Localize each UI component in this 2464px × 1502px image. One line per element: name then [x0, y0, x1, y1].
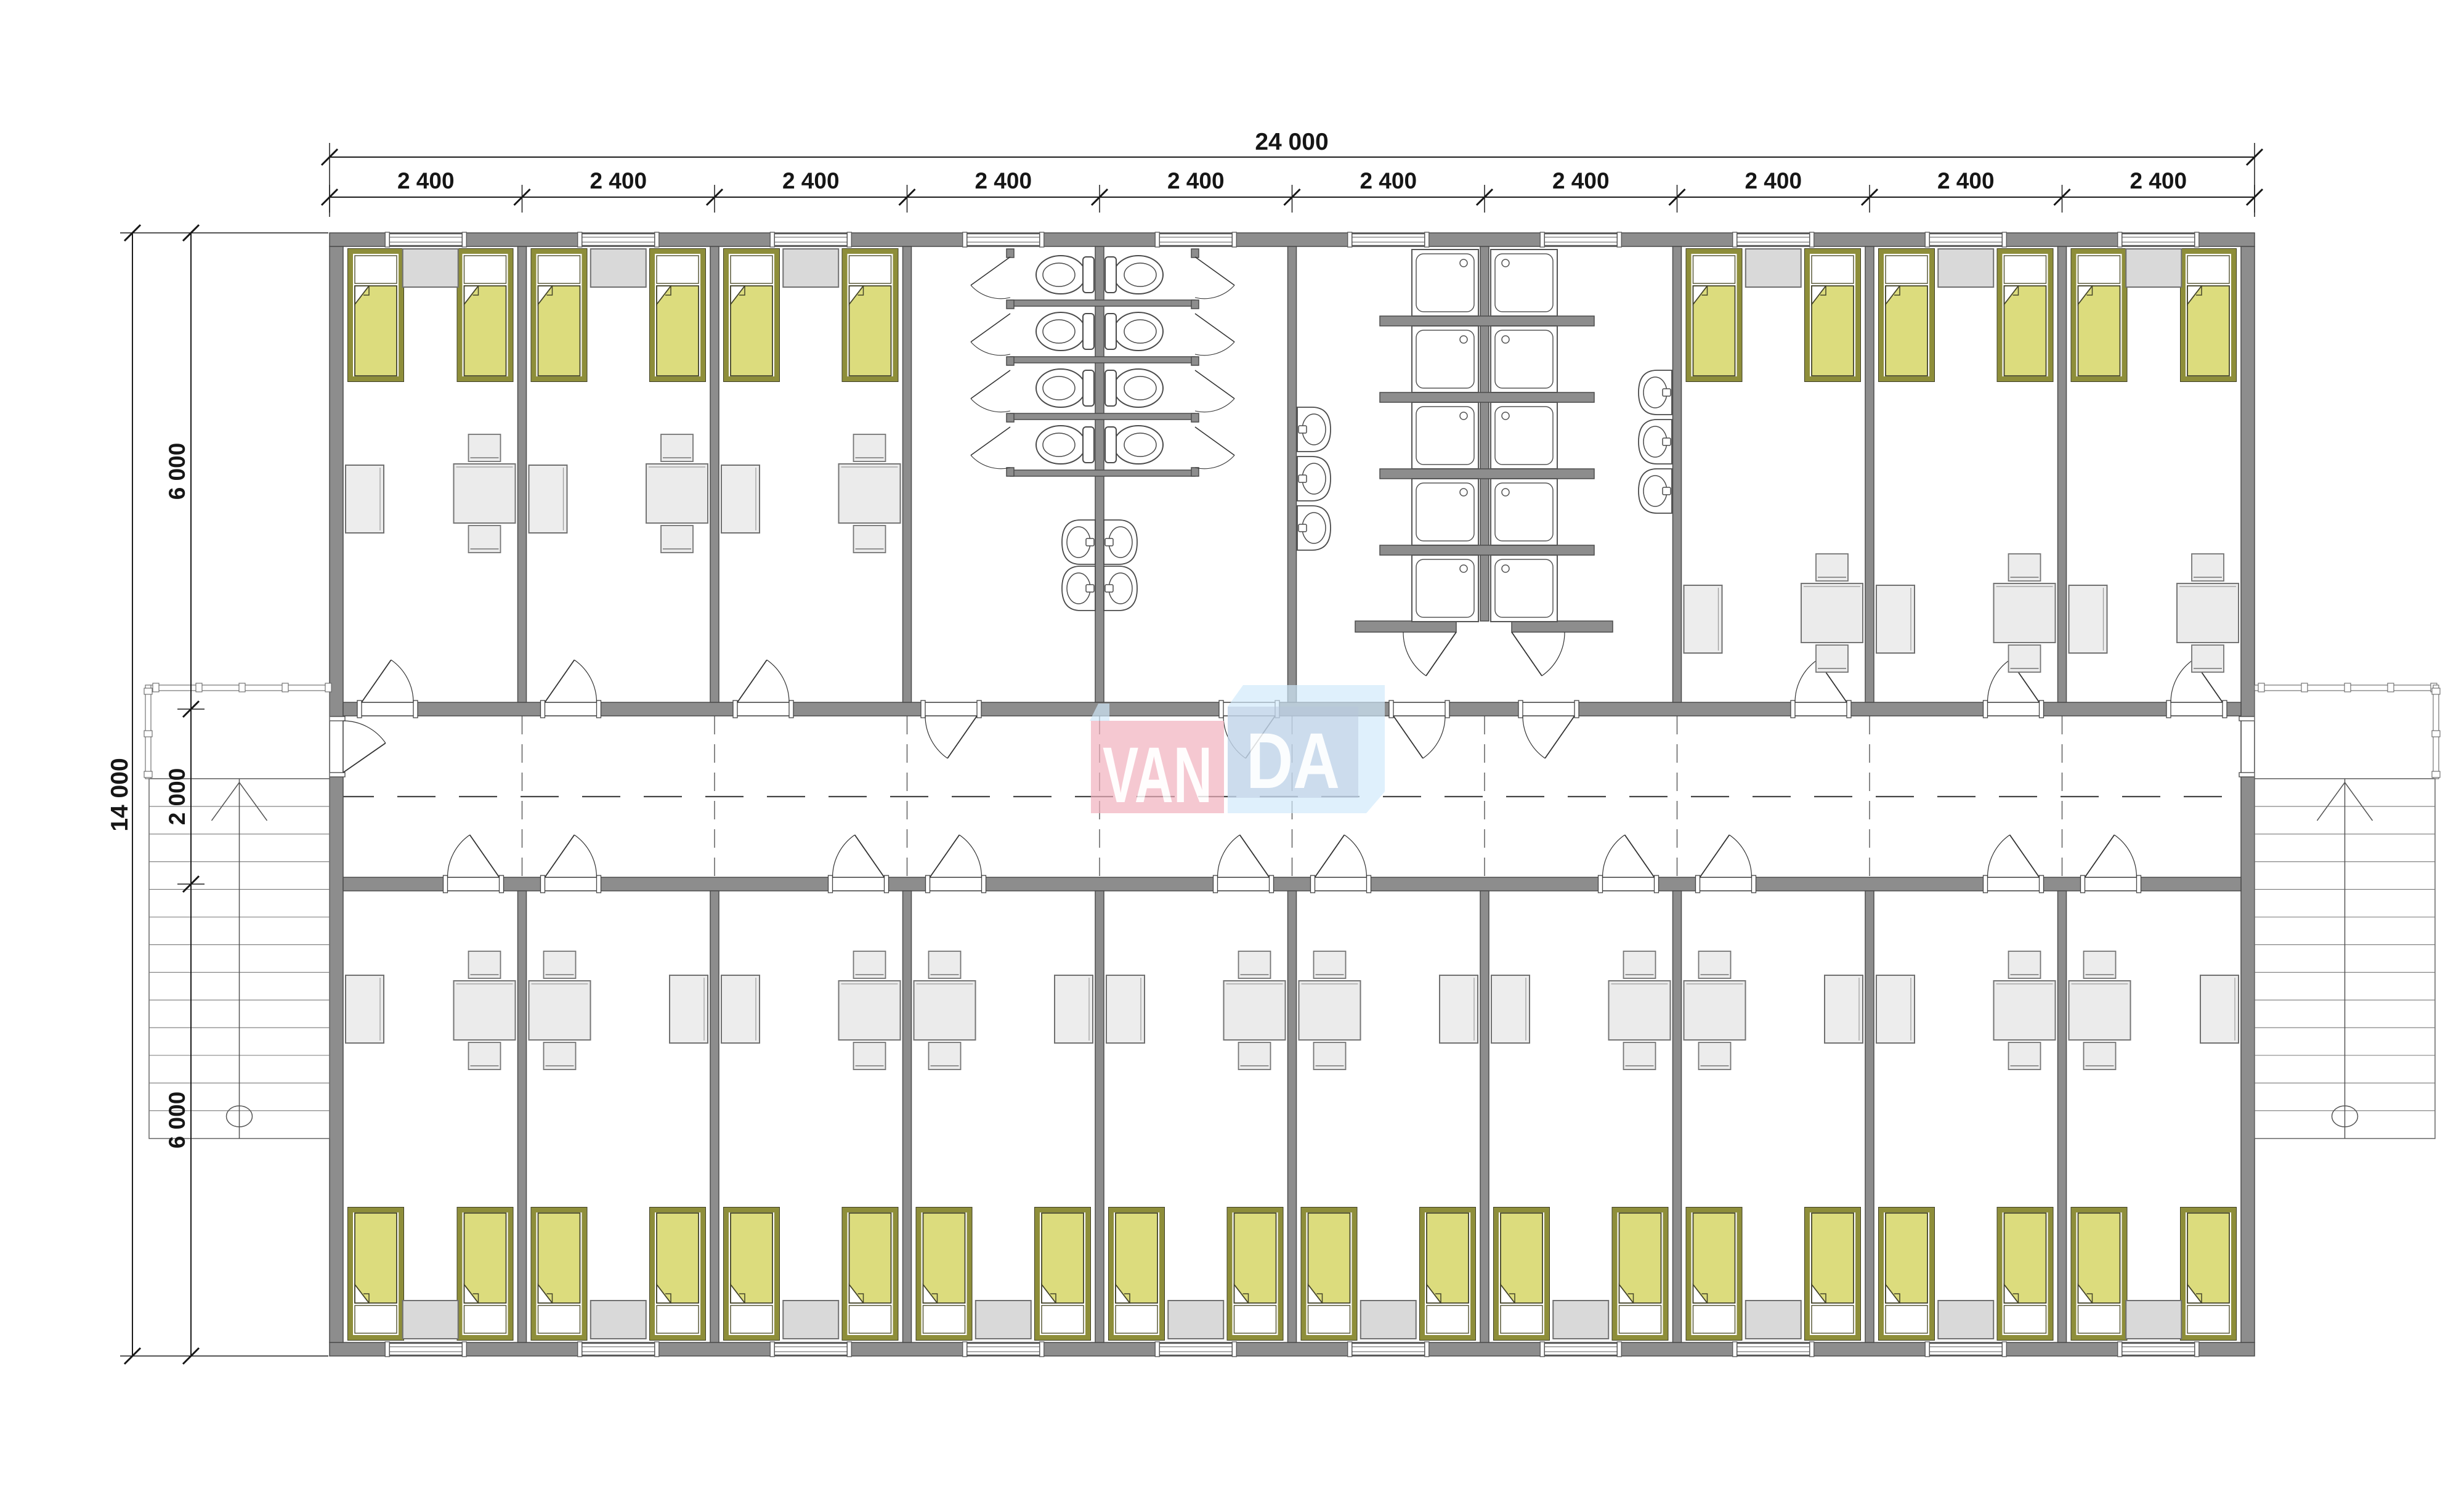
basin-icon [1297, 506, 1331, 550]
window-jamb [1425, 232, 1429, 247]
chair-icon [469, 526, 501, 553]
chair-icon [2192, 645, 2224, 672]
door-jamb [500, 875, 504, 893]
window-jamb [963, 232, 967, 247]
door-jamb [2166, 700, 2171, 718]
bed-icon [917, 1208, 972, 1340]
window-jamb [655, 1342, 659, 1357]
door-jamb [444, 875, 448, 893]
shower-icon [1491, 402, 1557, 469]
window-jamb [1155, 1342, 1159, 1357]
window-icon [967, 234, 1040, 246]
shower-icon [1412, 402, 1478, 469]
wall-segment [903, 891, 912, 1342]
door-jamb [541, 700, 545, 718]
table-icon [1994, 583, 2056, 643]
bed-icon [1035, 1208, 1090, 1340]
blueprint-canvas: 2 4002 4002 4002 4002 4002 4002 4002 400… [0, 0, 2464, 1502]
desk-icon [2200, 975, 2239, 1043]
window-jamb [1733, 1342, 1737, 1357]
window-icon [1929, 234, 2002, 246]
stall-door-arc [1195, 455, 1234, 469]
table-icon [646, 464, 708, 523]
door-opening [1603, 878, 1655, 890]
window-jamb [1925, 232, 1929, 247]
wall-segment [1191, 249, 1199, 258]
door-swing-arc [2171, 660, 2193, 702]
bed-icon [650, 249, 705, 381]
railing-post [2432, 731, 2440, 737]
door-swing-arc [574, 660, 596, 702]
bed-icon [458, 249, 513, 381]
wardrobe-icon [591, 249, 646, 287]
chair-icon [1699, 1042, 1731, 1070]
stair-landing [149, 688, 330, 779]
desk-icon [1440, 975, 1478, 1043]
door-jamb [829, 875, 833, 893]
desk-icon [721, 975, 760, 1043]
door-jamb [2239, 773, 2256, 777]
door-jamb [789, 700, 793, 718]
railing-post [239, 683, 245, 692]
chair-icon [469, 1042, 501, 1070]
stall-door-arc [1195, 342, 1234, 355]
wall-segment [1865, 891, 1874, 1342]
shower-icon [1491, 326, 1557, 392]
window-jamb [1232, 232, 1236, 247]
height-segment-dimension-label: 6 000 [164, 443, 190, 500]
stall-door-leaf [1195, 427, 1234, 455]
door-jamb [357, 700, 362, 718]
door-opening [1795, 703, 1847, 715]
door-leaf [362, 660, 391, 702]
shower-icon [1491, 479, 1557, 545]
bed-icon [2181, 249, 2236, 381]
bed-icon [843, 1208, 898, 1340]
door-swing-arc [574, 835, 596, 877]
table-icon [1684, 981, 1746, 1040]
window-jamb [963, 1342, 967, 1357]
door-jamb [2040, 875, 2044, 893]
window-jamb [385, 232, 389, 247]
bed-icon [2072, 249, 2127, 381]
chair-icon [854, 1042, 886, 1070]
door-opening [930, 878, 982, 890]
window-jamb [2002, 1342, 2006, 1357]
wall-segment [1010, 413, 1195, 420]
chair-icon [2009, 1042, 2041, 1070]
bed-icon [1998, 249, 2053, 381]
door-opening [1700, 878, 1752, 890]
wall-segment [1007, 357, 1014, 365]
railing-post [325, 683, 331, 692]
basin-icon [1639, 370, 1672, 415]
door-opening [2171, 703, 2223, 715]
wall-segment [1480, 246, 1489, 621]
basin-icon [1104, 566, 1137, 611]
window-jamb [2118, 1342, 2122, 1357]
railing-post [144, 731, 152, 737]
door-opening [1988, 703, 2040, 715]
shower-icon [1412, 555, 1478, 622]
bay-dimension-label: 2 400 [782, 168, 840, 193]
wall-segment [1673, 246, 1682, 702]
door-jamb [982, 875, 986, 893]
desk-icon [670, 975, 708, 1043]
window-jamb [1733, 232, 1737, 247]
window-icon [2122, 234, 2195, 246]
door-jamb [1984, 875, 1988, 893]
door-jamb [1219, 700, 1223, 718]
chair-icon [661, 526, 693, 553]
door-leaf [343, 743, 386, 773]
wall-segment [1007, 249, 1014, 258]
window-jamb [1232, 1342, 1236, 1357]
door-jamb [1655, 875, 1659, 893]
bay-dimension-label: 2 400 [590, 168, 647, 193]
bay-dimension-label: 2 400 [1937, 168, 1995, 193]
table-icon [1224, 981, 1286, 1040]
railing-post [144, 771, 152, 777]
door-leaf [545, 660, 575, 702]
wall-segment [1480, 891, 1489, 1342]
door-swing-arc [1423, 716, 1445, 758]
wall-segment [1010, 300, 1195, 306]
bed-icon [724, 1208, 779, 1340]
wall-segment [2058, 891, 2067, 1342]
door-swing-arc [833, 835, 855, 877]
door-swing-arc [1218, 835, 1240, 877]
stall-door-arc [971, 342, 1010, 355]
stall-door-arc [971, 455, 1010, 469]
door-opening [1218, 878, 1270, 890]
window-icon [1352, 1344, 1425, 1355]
stall-door-arc [971, 399, 1010, 412]
window-jamb [770, 232, 774, 247]
chair-icon [1624, 951, 1656, 978]
door-jamb [1270, 875, 1274, 893]
bay-dimension-label: 2 400 [1745, 168, 1802, 193]
door-opening [833, 878, 885, 890]
chair-icon [2084, 951, 2116, 978]
door-opening [1315, 878, 1367, 890]
door-jamb [1752, 875, 1756, 893]
bed-icon [1420, 1208, 1475, 1340]
wardrobe-icon [1361, 1301, 1416, 1339]
window-jamb [1810, 232, 1814, 247]
bed-icon [650, 1208, 705, 1340]
wall-segment [1007, 413, 1014, 422]
door-opening [545, 703, 597, 715]
window-jamb [462, 232, 466, 247]
door-jamb [1445, 700, 1449, 718]
door-leaf [1512, 632, 1542, 676]
bed-icon [1687, 1208, 1742, 1340]
wardrobe-icon [783, 249, 838, 287]
desk-icon [721, 465, 760, 533]
wall-segment [1512, 621, 1613, 632]
door-leaf [855, 835, 885, 877]
table-icon [529, 981, 591, 1040]
door-leaf [947, 716, 977, 758]
bed-icon [1228, 1208, 1283, 1340]
door-swing-arc [391, 660, 413, 702]
door-jamb [2040, 700, 2044, 718]
door-leaf [1700, 835, 1730, 877]
desk-icon [1684, 585, 1722, 653]
window-icon [1159, 234, 1232, 246]
door-jamb [1574, 700, 1579, 718]
chair-icon [544, 951, 576, 978]
wardrobe-icon [2126, 1301, 2181, 1339]
window-icon [1929, 1344, 2002, 1355]
wall-segment [903, 246, 912, 702]
door-leaf [1393, 716, 1423, 758]
chair-icon [1816, 554, 1848, 581]
shower-icon [1491, 555, 1557, 622]
wall-segment [1191, 468, 1199, 476]
wall-segment [1380, 545, 1594, 555]
desk-icon [1106, 975, 1145, 1043]
desk-icon [1876, 975, 1915, 1043]
wall-segment [1673, 891, 1682, 1342]
toilet-icon [1036, 312, 1094, 351]
wall-segment [1288, 891, 1297, 1342]
bed-icon [1879, 1208, 1934, 1340]
chair-icon [469, 434, 501, 461]
table-icon [2177, 583, 2239, 643]
table-icon [914, 981, 976, 1040]
table-icon [1299, 981, 1361, 1040]
stall-door-leaf [971, 257, 1010, 285]
door-leaf [737, 660, 767, 702]
wall-segment [518, 891, 527, 1342]
window-jamb [847, 1342, 851, 1357]
total-height-dimension: 14 000 [107, 758, 133, 831]
door-opening [737, 703, 789, 715]
bed-icon [2181, 1208, 2236, 1340]
desk-icon [1825, 975, 1863, 1043]
door-leaf [1426, 632, 1456, 676]
chair-icon [1314, 951, 1346, 978]
wall-segment [1380, 469, 1594, 479]
bed-icon [1109, 1208, 1164, 1340]
door-leaf [2010, 835, 2040, 877]
door-leaf [1315, 835, 1345, 877]
wardrobe-icon [1746, 1301, 1801, 1339]
desk-icon [346, 975, 384, 1043]
window-jamb [770, 1342, 774, 1357]
chair-icon [469, 951, 501, 978]
door-swing-arc [343, 721, 386, 743]
railing-post [153, 683, 159, 692]
toilet-icon [1105, 426, 1163, 464]
window-jamb [1348, 232, 1352, 247]
railing-post [2344, 683, 2351, 692]
bed-icon [1998, 1208, 2053, 1340]
bay-dimension-label: 2 400 [1360, 168, 1417, 193]
wall-segment [330, 246, 343, 1342]
wardrobe-icon [591, 1301, 646, 1339]
toilet-icon [1105, 256, 1163, 294]
stall-door-leaf [1195, 370, 1234, 399]
door-opening [448, 878, 500, 890]
door-jamb [1696, 875, 1700, 893]
door-opening [2085, 878, 2137, 890]
chair-icon [854, 951, 886, 978]
door-swing-arc [2114, 835, 2136, 877]
wall-segment [1191, 357, 1199, 365]
table-icon [1801, 583, 1863, 643]
sanitary-fixtures [971, 250, 1672, 676]
shower-icon [1412, 250, 1478, 316]
stall-door-leaf [1195, 257, 1234, 285]
brand-text-da: DA [1246, 717, 1340, 805]
door-leaf [545, 835, 575, 877]
chair-icon [2009, 554, 2041, 581]
door-opening [330, 721, 342, 773]
window-icon [1737, 1344, 1810, 1355]
door-leaf [1625, 835, 1655, 877]
door-leaf [2085, 835, 2115, 877]
door-swing-arc [959, 835, 981, 877]
window-icon [582, 234, 655, 246]
window-icon [389, 1344, 462, 1355]
window-jamb [2195, 1342, 2199, 1357]
door-jamb [597, 875, 601, 893]
window-jamb [462, 1342, 466, 1357]
door-opening [925, 703, 977, 715]
wall-segment [1288, 246, 1297, 702]
wall-segment [710, 246, 719, 702]
stall-door-leaf [1195, 314, 1234, 342]
desk-icon [2069, 585, 2107, 653]
wall-segment [1191, 300, 1199, 309]
door-jamb [1518, 700, 1523, 718]
door-opening [1988, 878, 2040, 890]
height-segment-dimension-label: 6 000 [164, 1092, 190, 1149]
chair-icon [1239, 1042, 1271, 1070]
wall-segment [1095, 891, 1104, 1342]
window-icon [582, 1344, 655, 1355]
railing-post [2432, 688, 2440, 694]
basin-icon [1639, 469, 1672, 513]
window-icon [1159, 1344, 1232, 1355]
bed-icon [458, 1208, 513, 1340]
wardrobe-icon [1168, 1301, 1223, 1339]
door-jamb [921, 700, 925, 718]
door-opening [362, 703, 413, 715]
table-icon [454, 981, 516, 1040]
door-leaf [470, 835, 500, 877]
door-jamb [1311, 875, 1315, 893]
window-jamb [1425, 1342, 1429, 1357]
window-jamb [1617, 1342, 1621, 1357]
wall-segment [1191, 413, 1199, 422]
table-icon [454, 464, 516, 523]
door-swing-arc [925, 716, 947, 758]
wardrobe-icon [1553, 1301, 1608, 1339]
door-opening [2242, 721, 2254, 773]
chair-icon [929, 951, 961, 978]
wall-segment [343, 877, 2241, 891]
chair-icon [854, 526, 886, 553]
window-jamb [1540, 232, 1544, 247]
door-swing-arc [448, 835, 470, 877]
basin-icon [1104, 520, 1137, 564]
wall-segment [1865, 246, 1874, 702]
door-jamb [977, 700, 981, 718]
window-icon [1544, 1344, 1617, 1355]
chair-icon [1699, 951, 1731, 978]
stall-door-leaf [971, 314, 1010, 342]
window-icon [967, 1344, 1040, 1355]
table-icon [839, 981, 901, 1040]
door-opening [1523, 703, 1574, 715]
toilet-icon [1036, 426, 1094, 464]
bed-icon [843, 249, 898, 381]
window-jamb [1617, 232, 1621, 247]
chair-icon [2009, 645, 2041, 672]
toilet-icon [1036, 256, 1094, 294]
wardrobe-icon [1938, 249, 1993, 287]
wardrobe-icon [403, 249, 458, 287]
bed-icon [1805, 1208, 1860, 1340]
desk-icon [1491, 975, 1530, 1043]
window-jamb [1155, 232, 1159, 247]
basin-icon [1297, 407, 1331, 452]
wardrobe-icon [976, 1301, 1031, 1339]
wall-segment [1380, 392, 1594, 402]
bay-dimension-label: 2 400 [1552, 168, 1610, 193]
table-icon [1609, 981, 1671, 1040]
basin-icon [1639, 420, 1672, 464]
door-swing-arc [767, 660, 789, 702]
total-width-dimension: 24 000 [1255, 129, 1328, 155]
bed-icon [1494, 1208, 1549, 1340]
desk-icon [529, 465, 567, 533]
railing-post [282, 683, 288, 692]
railing-post [144, 688, 152, 694]
wall-segment [1380, 316, 1594, 326]
toilet-icon [1036, 369, 1094, 407]
window-jamb [385, 1342, 389, 1357]
wall-segment [518, 246, 527, 702]
door-jamb [541, 875, 545, 893]
toilet-icon [1105, 369, 1163, 407]
window-jamb [1925, 1342, 1929, 1357]
door-swing-arc [1403, 632, 1426, 676]
door-swing-arc [1795, 660, 1817, 702]
door-jamb [1389, 700, 1393, 718]
chair-icon [1314, 1042, 1346, 1070]
window-jamb [1040, 1342, 1044, 1357]
basin-icon [1062, 566, 1095, 611]
door-jamb [733, 700, 737, 718]
wardrobe-icon [403, 1301, 458, 1339]
wall-segment [1010, 357, 1195, 363]
table-icon [1994, 981, 2056, 1040]
wardrobe-icon [2126, 249, 2181, 287]
chair-icon [854, 434, 886, 461]
bay-dimension-label: 2 400 [975, 168, 1032, 193]
bed-icon [2072, 1208, 2127, 1340]
door-opening [1393, 703, 1445, 715]
shower-icon [1491, 250, 1557, 316]
chair-icon [1624, 1042, 1656, 1070]
chair-icon [661, 434, 693, 461]
height-segment-dimension-label: 2 000 [164, 768, 190, 826]
